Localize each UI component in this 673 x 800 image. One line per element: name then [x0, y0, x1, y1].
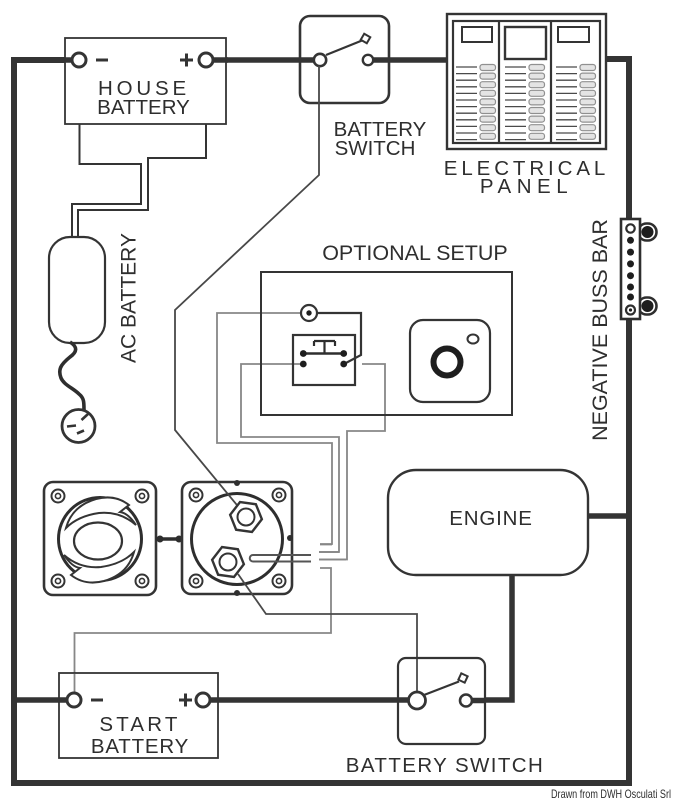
svg-text:OPTIONAL SETUP: OPTIONAL SETUP: [322, 241, 508, 265]
svg-text:BATTERY SWITCH: BATTERY SWITCH: [346, 754, 544, 777]
svg-text:SWITCH: SWITCH: [335, 137, 416, 160]
svg-text:ENGINE: ENGINE: [449, 507, 532, 530]
svg-text:PANEL: PANEL: [480, 175, 573, 198]
svg-text:NEGATIVE BUSS BAR: NEGATIVE BUSS BAR: [588, 219, 612, 441]
svg-text:Drawn from DWH Osculati Srl: Drawn from DWH Osculati Srl: [551, 787, 671, 800]
svg-text:BATTERY: BATTERY: [97, 96, 190, 119]
svg-text:AC BATTERY: AC BATTERY: [118, 233, 141, 363]
svg-text:BATTERY: BATTERY: [91, 735, 189, 758]
svg-text:START: START: [99, 713, 180, 736]
